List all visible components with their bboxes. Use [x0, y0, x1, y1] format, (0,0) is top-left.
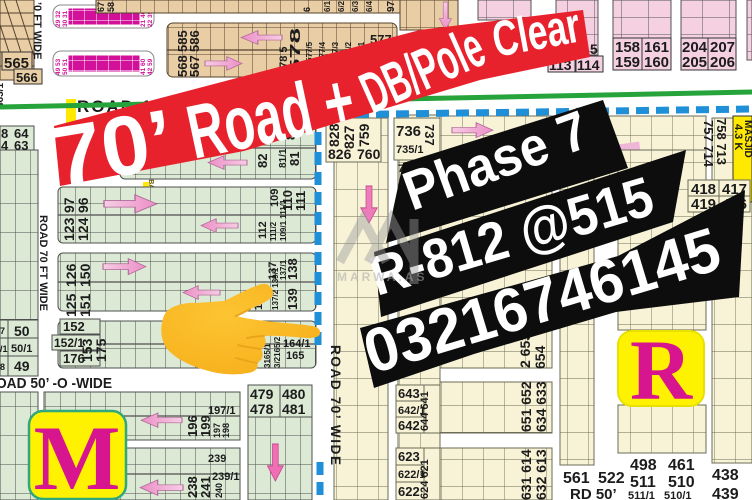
svg-text:438: 438 [712, 467, 739, 484]
svg-text:50: 50 [14, 323, 30, 339]
svg-text:151: 151 [77, 293, 93, 317]
svg-text:124: 124 [75, 217, 91, 241]
svg-text:30 31: 30 31 [62, 10, 69, 27]
svg-text:651 652: 651 652 [518, 381, 534, 432]
svg-text:159: 159 [615, 54, 640, 71]
svg-text:642: 642 [398, 418, 420, 433]
svg-text:199: 199 [198, 415, 213, 437]
svg-text:239: 239 [208, 453, 226, 465]
svg-text:6/4: 6/4 [365, 0, 374, 12]
svg-text:197/1: 197/1 [208, 405, 236, 417]
svg-text:111/2: 111/2 [269, 221, 278, 241]
svg-text:461: 461 [668, 457, 695, 474]
svg-text:7: 7 [0, 326, 5, 336]
svg-text:ROAD 70 FT WIDE: ROAD 70 FT WIDE [37, 215, 49, 311]
svg-text:111: 111 [293, 191, 308, 211]
svg-text:6/1: 6/1 [323, 0, 332, 12]
svg-text:654: 654 [532, 345, 548, 369]
svg-text:29 32: 29 32 [55, 10, 62, 27]
svg-text:3/2165/2: 3/2165/2 [273, 336, 282, 368]
svg-text:4: 4 [1, 138, 9, 153]
svg-text:50/1: 50/1 [11, 343, 32, 355]
svg-text:566: 566 [16, 70, 38, 85]
svg-text:4.3 K: 4.3 K [732, 124, 744, 150]
svg-text:42 59: 42 59 [147, 58, 154, 75]
svg-text:586: 586 [187, 30, 202, 52]
svg-text:’0 FT WIDE: ’0 FT WIDE [31, 2, 43, 59]
svg-text:58: 58 [106, 2, 116, 12]
svg-text:70’: 70’ [46, 91, 180, 204]
svg-text:139: 139 [285, 288, 300, 310]
svg-text:511: 511 [630, 474, 656, 491]
svg-text:239/1: 239/1 [212, 471, 240, 483]
svg-text:6/3: 6/3 [351, 0, 360, 12]
svg-text:463/1: 463/1 [0, 83, 6, 108]
svg-text:511/1: 511/1 [628, 490, 655, 500]
svg-text:826: 826 [328, 146, 352, 162]
svg-text:175: 175 [93, 338, 109, 362]
svg-text:138: 138 [285, 258, 300, 280]
svg-text:498: 498 [630, 457, 657, 474]
svg-text:ROAD 70’ WIDE: ROAD 70’ WIDE [328, 345, 343, 465]
svg-text:137/2 139/1: 137/2 139/1 [271, 267, 280, 310]
svg-text:622: 622 [398, 484, 420, 499]
svg-text:8: 8 [0, 362, 5, 372]
svg-text:49 53: 49 53 [55, 58, 62, 75]
svg-text:760: 760 [357, 146, 381, 162]
svg-text:561: 561 [563, 470, 590, 487]
svg-text:757 714: 757 714 [701, 120, 716, 168]
svg-text:198: 198 [221, 423, 231, 438]
svg-text:63: 63 [14, 138, 28, 153]
svg-text:567: 567 [187, 55, 202, 77]
svg-text:152: 152 [63, 319, 85, 334]
svg-text:6: 6 [302, 7, 312, 12]
svg-text:439: 439 [712, 486, 739, 500]
svg-text:758 713: 758 713 [714, 118, 729, 165]
svg-text:6/2: 6/2 [337, 0, 346, 12]
svg-text:736: 736 [396, 123, 421, 140]
svg-text:481: 481 [282, 401, 306, 417]
svg-text:632 613: 632 613 [533, 449, 549, 500]
svg-text:RD 50’: RD 50’ [570, 486, 617, 500]
svg-text:737: 737 [422, 124, 437, 146]
svg-text:160: 160 [644, 54, 669, 71]
svg-text:109/1 111/1: 109/1 111/1 [279, 199, 288, 241]
svg-text:112: 112 [257, 221, 269, 239]
svg-text:623: 623 [398, 449, 420, 464]
svg-text:634 633: 634 633 [533, 381, 549, 432]
svg-text:205: 205 [682, 54, 707, 71]
svg-text:631 614: 631 614 [518, 449, 534, 500]
svg-text:510/1: 510/1 [664, 490, 692, 500]
svg-text:MARWA.AS: MARWA.AS [337, 270, 427, 284]
svg-text:510: 510 [668, 474, 695, 491]
svg-text:50 51: 50 51 [62, 58, 69, 75]
svg-text:M: M [34, 407, 121, 500]
svg-text:624 621: 624 621 [419, 459, 431, 499]
svg-text:150: 150 [77, 263, 93, 287]
svg-text:241: 241 [198, 476, 213, 498]
svg-text:522: 522 [598, 470, 625, 487]
svg-text:643: 643 [398, 386, 420, 401]
svg-text:3165/1: 3165/1 [263, 343, 272, 368]
svg-text:OAD 50’ -O -WIDE: OAD 50’ -O -WIDE [0, 375, 112, 392]
svg-text:478: 478 [250, 401, 274, 417]
svg-text:49: 49 [14, 358, 30, 374]
svg-text:165: 165 [286, 350, 304, 362]
svg-text:644 641: 644 641 [419, 391, 431, 431]
svg-text:114: 114 [577, 57, 600, 73]
svg-text:67: 67 [96, 2, 106, 12]
svg-text:206: 206 [710, 54, 735, 71]
svg-text:41 60: 41 60 [140, 58, 147, 75]
svg-text:/1: /1 [0, 344, 8, 354]
svg-text:R: R [630, 322, 693, 418]
svg-text:164/1: 164/1 [283, 338, 311, 350]
svg-text:240: 240 [214, 483, 224, 498]
svg-text:479: 479 [250, 386, 274, 402]
svg-text:5: 5 [590, 41, 598, 57]
svg-text:480: 480 [282, 386, 306, 402]
svg-text:97: 97 [386, 0, 397, 12]
